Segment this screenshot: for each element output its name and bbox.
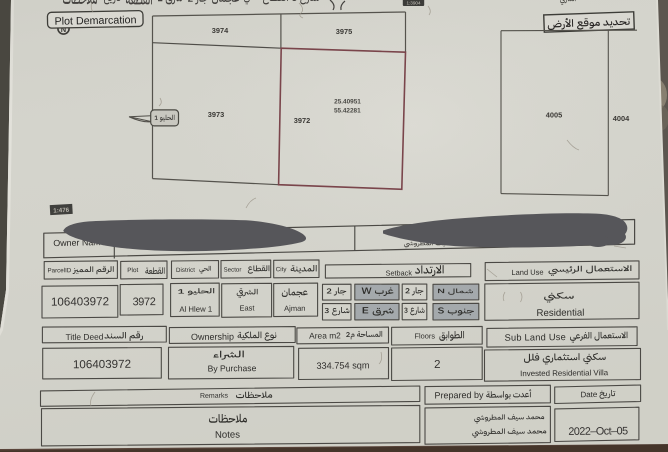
svg-text:3972: 3972: [132, 296, 155, 308]
svg-text:4005: 4005: [546, 111, 562, 120]
svg-text:Land Use: Land Use: [511, 268, 543, 277]
svg-text:Plot: Plot: [127, 267, 138, 274]
svg-text:Sector: Sector: [224, 267, 242, 274]
svg-text:Plot Demarcation: Plot Demarcation: [54, 14, 136, 28]
svg-text:ParcelID: ParcelID: [47, 267, 71, 274]
svg-text:55.42281: 55.42281: [334, 107, 361, 114]
svg-text:3972: 3972: [294, 116, 310, 125]
svg-text:Area m2: Area m2: [309, 330, 341, 340]
svg-text:By Purchase: By Purchase: [208, 363, 257, 373]
svg-text:Notes: Notes: [215, 430, 240, 441]
svg-text:2: 2: [434, 359, 441, 371]
svg-text:Remarks: Remarks: [200, 393, 229, 400]
svg-text:4004: 4004: [613, 114, 630, 123]
svg-text:Al Hlew 1: Al Hlew 1: [179, 305, 212, 314]
svg-text:Ownership: Ownership: [191, 332, 234, 342]
svg-text:25.40951: 25.40951: [334, 98, 361, 105]
svg-text:Ajman: Ajman: [284, 304, 305, 313]
svg-text:2022–Oct–05: 2022–Oct–05: [568, 425, 628, 438]
svg-text:106403972: 106403972: [73, 358, 131, 372]
svg-text:1:476: 1:476: [53, 207, 70, 215]
svg-text:Sub Land Use: Sub Land Use: [505, 332, 566, 343]
svg-text:334.754 sqm: 334.754 sqm: [316, 360, 370, 370]
svg-text:3973: 3973: [208, 110, 224, 119]
svg-text:3974: 3974: [212, 26, 229, 35]
svg-text:Title Deed: Title Deed: [66, 332, 104, 342]
svg-text:Prepared by: Prepared by: [434, 390, 484, 401]
svg-text:Invested Residential Villa: Invested Residential Villa: [520, 368, 609, 378]
svg-text:Date: Date: [580, 390, 598, 399]
svg-text:1:3904: 1:3904: [406, 1, 420, 6]
svg-text:106403972: 106403972: [51, 295, 109, 309]
svg-text:District: District: [176, 267, 195, 274]
svg-text:East: East: [239, 303, 255, 312]
svg-text:City: City: [276, 266, 288, 273]
svg-text:3975: 3975: [336, 27, 352, 36]
svg-text:Setback: Setback: [386, 268, 413, 277]
svg-text:Floors: Floors: [414, 331, 435, 340]
svg-text:Residential: Residential: [536, 308, 584, 320]
